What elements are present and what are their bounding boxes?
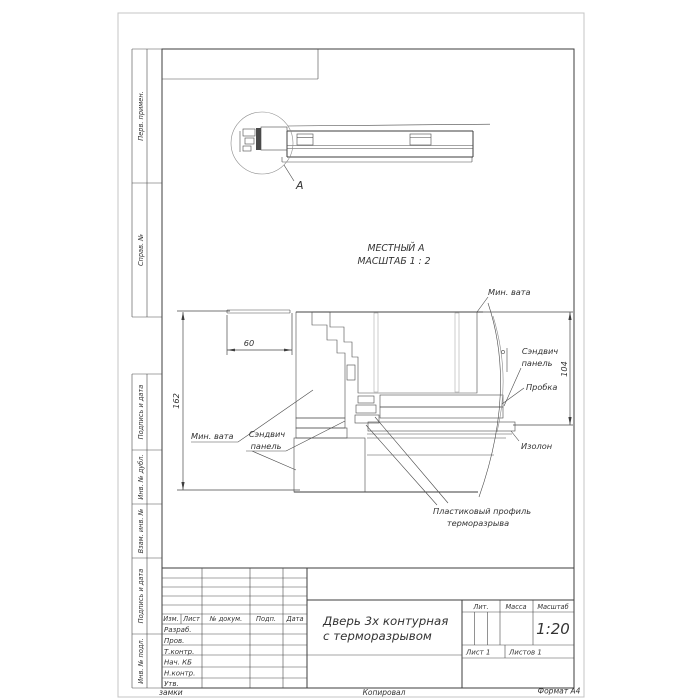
side-label-inv-podl: Инв. № подл. xyxy=(137,638,145,684)
sheets-total: Листов 1 xyxy=(508,649,542,657)
format-label: Формат А4 xyxy=(538,687,581,696)
scale-value: 1:20 xyxy=(536,620,570,638)
side-label-sprav-no: Справ. № xyxy=(137,234,145,266)
col-list: Лист xyxy=(182,615,200,623)
side-label-podpis-data-top: Подпись и дата xyxy=(137,385,145,440)
doc-title-line2: с терморазрывом xyxy=(323,629,432,643)
side-label-perv-primen: Перв. примен. xyxy=(137,91,145,141)
label-min-vata-top: Мин. вата xyxy=(488,287,531,297)
panel-seam-2 xyxy=(455,313,459,392)
dim-60: 60 xyxy=(244,338,254,348)
col-doc: № докум. xyxy=(209,615,243,623)
label-sandwich-left-1: Сэндвич xyxy=(249,429,285,439)
row-nachkb: Нач. КБ xyxy=(164,659,192,667)
copied-by-label: Копировал xyxy=(363,688,406,697)
panel-seam-1 xyxy=(374,313,378,392)
side-label-inv-dubl: Инв. № дубл. xyxy=(137,454,145,499)
side-label-podpis-data-bottom: Подпись и дата xyxy=(137,569,145,624)
row-razrab: Разраб. xyxy=(164,626,192,634)
row-utv: Утв. xyxy=(164,680,179,688)
label-izolon: Изолон xyxy=(521,441,553,451)
col-izm: Изм. xyxy=(163,615,179,623)
sheet-number: Лист 1 xyxy=(465,649,490,657)
dim-104: 104 xyxy=(559,361,569,377)
local-view-title-line2: МАСШТАБ 1 : 2 xyxy=(357,256,430,267)
label-sandwich-right-2: панель xyxy=(522,358,553,368)
label-sandwich-left-2: панель xyxy=(251,441,282,451)
massa-label: Масса xyxy=(505,603,526,611)
col-podp: Подп. xyxy=(256,615,276,623)
local-view-title-line1: МЕСТНЫЙ А xyxy=(368,242,425,254)
label-probka: Пробка xyxy=(526,382,557,392)
row-tkontr: Т.контр. xyxy=(164,648,194,656)
label-plastic-profile-1: Пластиковый профиль xyxy=(433,506,531,516)
lit-label: Лит. xyxy=(472,603,488,611)
dim-162: 162 xyxy=(171,393,181,409)
label-plastic-profile-2: терморазрыва xyxy=(447,518,509,528)
doc-title-line1: Дверь 3х контурная xyxy=(322,614,448,628)
masshtab-label: Масштаб xyxy=(537,603,568,611)
drawing-sheet: Перв. примен. Справ. № Подпись и дата Ин… xyxy=(0,0,700,700)
label-sandwich-right-1: Сэндвич xyxy=(522,346,558,356)
side-label-vzam-inv: Взам. инв. № xyxy=(137,508,145,553)
watermark-left: замки xyxy=(159,688,183,697)
page-outline xyxy=(118,13,584,697)
row-prov: Пров. xyxy=(164,637,184,645)
row-nkontr: Н.контр. xyxy=(164,670,195,678)
col-data: Дата xyxy=(285,615,303,623)
detail-callout-letter: А xyxy=(295,179,304,192)
label-min-vata-left: Мин. вата xyxy=(191,431,234,441)
